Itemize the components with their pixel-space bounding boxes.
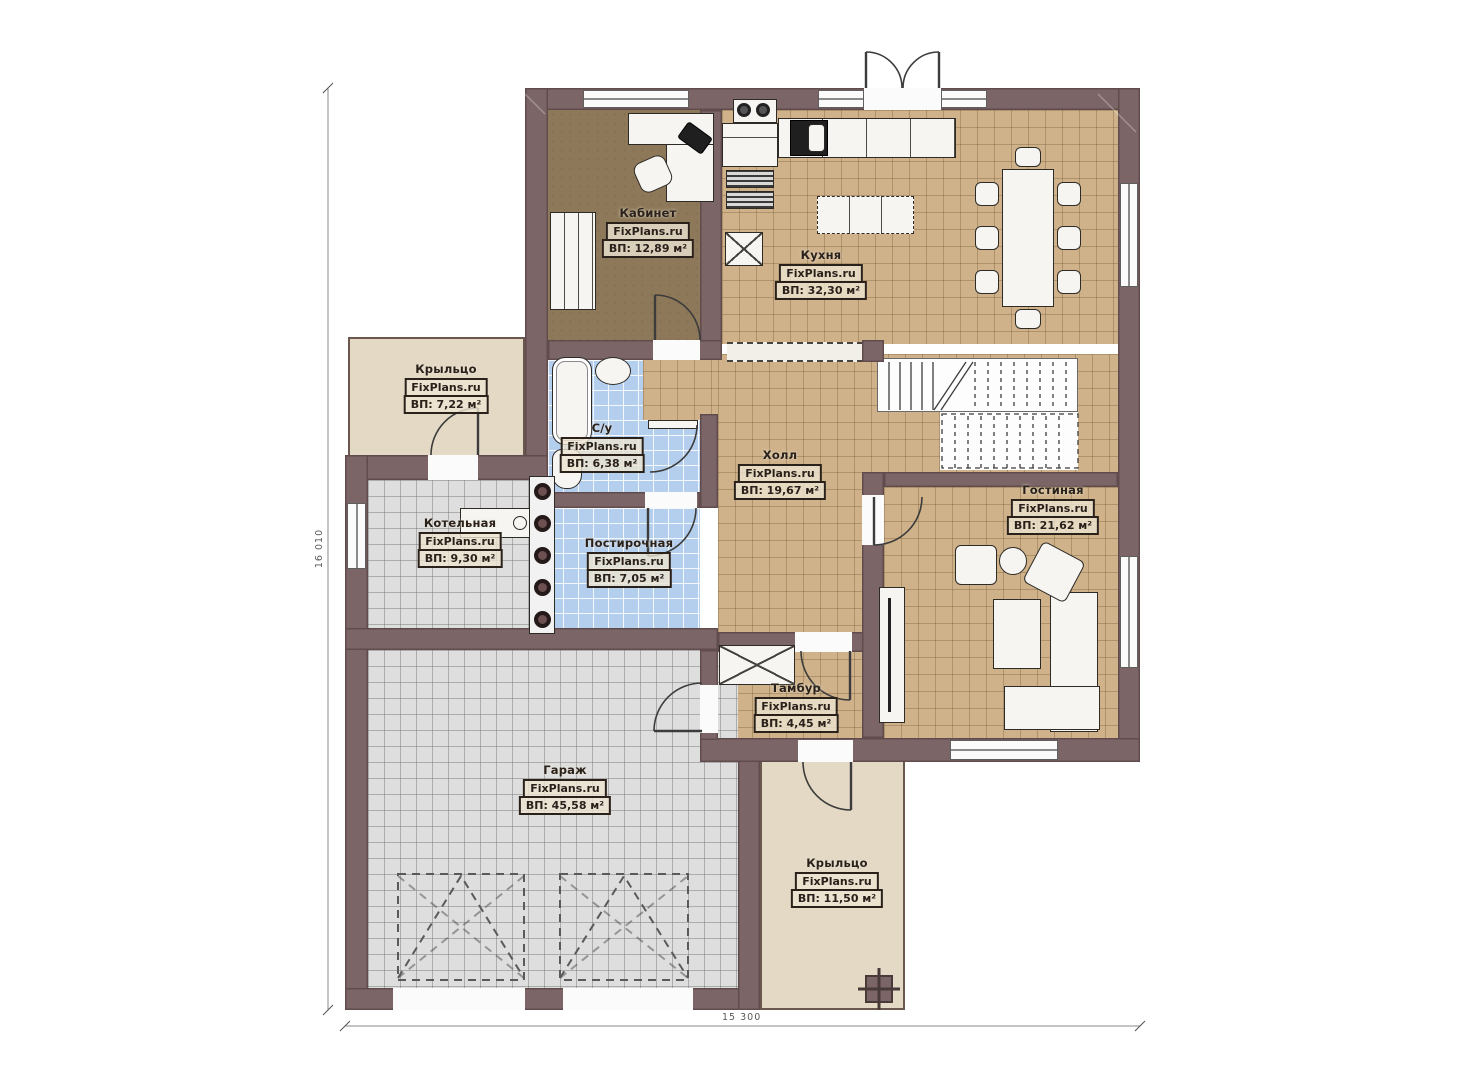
door-gap-porch-left <box>428 455 478 480</box>
kitchen-hall-opening <box>727 342 863 362</box>
room-label-garazh: Гараж FixPlans.ru ВП: 45,58 м² <box>519 763 611 815</box>
dining-chair <box>975 270 999 294</box>
wall-stub-kitchen-hall <box>862 340 884 362</box>
room-name: Крыльцо <box>806 856 868 870</box>
room-label-tambur: Тамбур FixPlans.ru ВП: 4,45 м² <box>754 681 839 733</box>
armchair <box>955 545 997 585</box>
room-area: ВП: 12,89 м² <box>602 239 694 258</box>
room-label-kuhnya: Кухня FixPlans.ru ВП: 32,30 м² <box>775 248 867 300</box>
desk-side <box>666 144 714 202</box>
room-label-kabinet: Кабинет FixPlans.ru ВП: 12,89 м² <box>602 206 694 258</box>
door-gap-office <box>653 340 700 360</box>
window-living-bottom <box>950 740 1058 760</box>
garage-gate-opening-2 <box>563 988 693 1010</box>
dining-table <box>1002 169 1054 307</box>
window-kitchen-top-right <box>941 90 987 108</box>
cooktop <box>733 99 777 123</box>
room-area: ВП: 7,22 м² <box>404 395 489 414</box>
floor-garage <box>368 650 738 988</box>
room-label-kotelnaya: Котельная FixPlans.ru ВП: 9,30 м² <box>418 516 503 568</box>
wall-left-upper <box>525 88 548 480</box>
tv-screen <box>888 598 891 712</box>
bathroom-door-leaf <box>648 420 698 429</box>
floor-hall-nook <box>643 354 718 420</box>
dishwasher <box>726 191 774 209</box>
room-name: Тамбур <box>771 681 821 695</box>
staircase-lower-flight <box>940 412 1078 470</box>
kitchen-vent-box <box>725 232 763 266</box>
room-name: Постирочная <box>585 536 673 550</box>
garage-gate-opening-1 <box>393 988 525 1010</box>
room-name: Гостиная <box>1022 483 1083 497</box>
sofa-horizontal <box>1004 686 1100 730</box>
coffee-table <box>993 599 1041 669</box>
window-boiler-left <box>347 503 366 569</box>
room-area: ВП: 21,62 м² <box>1007 516 1099 535</box>
room-area: ВП: 4,45 м² <box>754 714 839 733</box>
oven <box>726 170 774 188</box>
floor-plan: Кабинет FixPlans.ru ВП: 12,89 м² Кухня F… <box>0 0 1473 1080</box>
room-label-holl: Холл FixPlans.ru ВП: 19,67 м² <box>734 448 826 500</box>
burner-icon <box>756 103 770 117</box>
burner-icon <box>737 103 751 117</box>
room-area: ВП: 32,30 м² <box>775 281 867 300</box>
dining-chair <box>1015 147 1041 167</box>
hall-closet <box>719 645 795 685</box>
room-name: Кухня <box>801 248 842 262</box>
door-gap-hall-tambur <box>795 632 852 652</box>
door-gap-hall-living <box>862 495 884 545</box>
room-label-kryltso-left: Крыльцо FixPlans.ru ВП: 7,22 м² <box>404 362 489 414</box>
window-kitchen-top-left <box>818 90 864 108</box>
room-name: Котельная <box>424 516 496 530</box>
sink-basin <box>808 124 825 152</box>
door-gap-tambur-garage <box>700 685 718 733</box>
room-area: ВП: 9,30 м² <box>418 549 503 568</box>
entry-door-opening <box>864 88 941 110</box>
boiler-dial <box>513 516 527 530</box>
staircase-upper-flight <box>877 358 1078 412</box>
room-label-gostinaya: Гостиная FixPlans.ru ВП: 21,62 м² <box>1007 483 1099 535</box>
bathroom-sink <box>595 357 631 385</box>
dining-chair <box>1057 182 1081 206</box>
door-gap-laundry <box>645 492 697 508</box>
sink-unit <box>790 120 828 156</box>
room-name: Крыльцо <box>415 362 477 376</box>
window-kitchen-right <box>1120 183 1138 287</box>
room-area: ВП: 7,05 м² <box>587 569 672 588</box>
pipe-riser-icon <box>534 483 551 500</box>
wall-bathroom-right <box>700 414 718 508</box>
room-label-postirochnaya: Постирочная FixPlans.ru ВП: 7,05 м² <box>585 536 673 588</box>
window-living-right <box>1120 556 1138 668</box>
wall-garage-right <box>738 740 760 1010</box>
room-name: Кабинет <box>619 206 676 220</box>
pipe-riser-icon <box>534 611 551 628</box>
dining-chair <box>1015 309 1041 329</box>
kitchen-island <box>817 196 914 234</box>
riser-strip <box>529 476 555 634</box>
pipe-riser-icon <box>534 515 551 532</box>
room-label-kryltso-bottom: Крыльцо FixPlans.ru ВП: 11,50 м² <box>791 856 883 908</box>
tv-stand <box>879 587 905 723</box>
dining-chair <box>975 182 999 206</box>
room-name: Холл <box>763 448 797 462</box>
room-name: Гараж <box>543 763 587 777</box>
door-gap-tambur-porch <box>798 740 853 762</box>
kitchen-counter-left <box>722 123 778 167</box>
window-office-top <box>583 90 689 108</box>
dimension-height: 16 010 <box>314 529 325 568</box>
dimension-width: 15 300 <box>722 1012 761 1023</box>
room-area: ВП: 6,38 м² <box>560 454 645 473</box>
dining-chair <box>1057 226 1081 250</box>
dining-chair <box>1057 270 1081 294</box>
pipe-riser-icon <box>534 579 551 596</box>
side-table <box>999 547 1027 575</box>
room-label-su: С/у FixPlans.ru ВП: 6,38 м² <box>560 421 645 473</box>
room-area: ВП: 11,50 м² <box>791 889 883 908</box>
room-name: С/у <box>592 421 613 435</box>
pipe-riser-icon <box>534 547 551 564</box>
room-area: ВП: 45,58 м² <box>519 796 611 815</box>
wardrobe <box>550 212 596 310</box>
room-area: ВП: 19,67 м² <box>734 481 826 500</box>
wall-bottom-right <box>700 738 1140 762</box>
dining-chair <box>975 226 999 250</box>
